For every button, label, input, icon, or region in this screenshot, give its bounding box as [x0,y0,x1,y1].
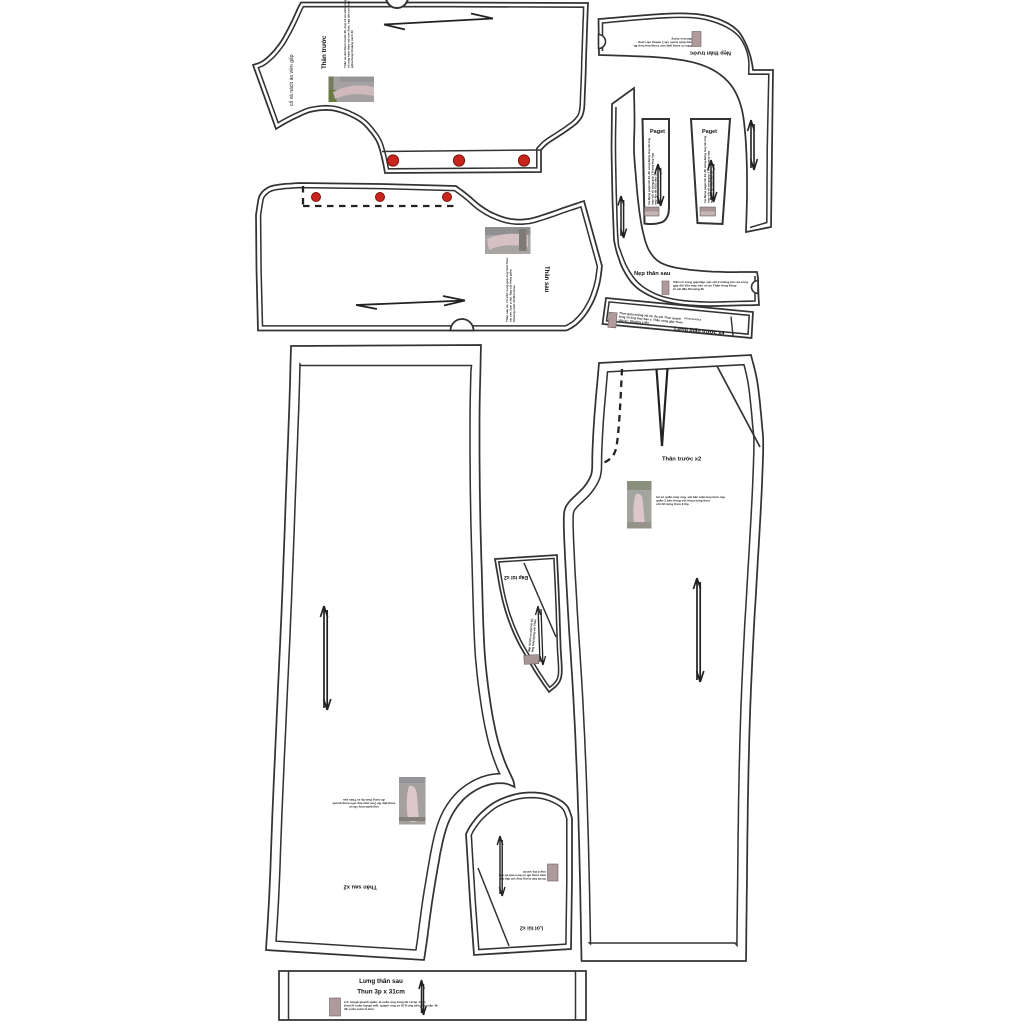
svg-text:đô. lưng thun 3p xx Thân sau: đô. lưng thun 3p xx Thân sau [343,798,385,802]
svg-text:Lưng thân sau: Lưng thân sau [359,978,403,985]
svg-text:Đáp túi x2: Đáp túi x2 [504,574,528,580]
svg-text:Paget: Paget [702,129,717,135]
svg-text:giữa hàng khoảng cách 3li: giữa hàng khoảng cách 3li [350,30,354,68]
svg-text:may lỗn đô KEO dán 3li: may lỗn đô KEO dán 3li [654,173,658,205]
svg-text:đề soắn xoắn lỗ bên: đề soắn xoắn lỗ bên [344,1006,374,1011]
svg-text:lỗ cài đều Khoảng 3li: lỗ cài đều Khoảng 3li [673,287,704,291]
svg-text:ống 2 lớp vải lót: ống 2 lớp vải lót [523,870,546,874]
svg-text:Thân trước x2: Thân trước x2 [662,457,701,463]
svg-text:với đô lưng thun 3 lỗp: với đô lưng thun 3 lỗp [656,502,689,506]
svg-text:Nẹp thân sau: Nẹp thân sau [634,271,671,277]
svg-text:dán keo dựng: dán keo dựng [671,37,692,41]
svg-text:Thân sau x2: Thân sau x2 [343,884,377,890]
svg-text:cổ và nách áo viền gấp: cổ và nách áo viền gấp [288,54,295,106]
svg-text:may lỗn đô KEO dán 3li: may lỗn đô KEO dán 3li [710,171,714,203]
svg-text:Lót túi x2: Lót túi x2 [520,925,543,931]
svg-text:Thân sau: Thân sau [543,266,549,293]
svg-text:Paget: Paget [650,129,665,135]
svg-text:Nẹp thân trước: Nẹp thân trước [690,50,731,56]
svg-text:khoảng cách 3li đều nhau: khoảng cách 3li đều nhau [512,285,516,322]
svg-text:Thun 3p x 31cm: Thun 3p x 31cm [357,989,405,996]
svg-text:Thân trước: Thân trước [321,35,328,69]
